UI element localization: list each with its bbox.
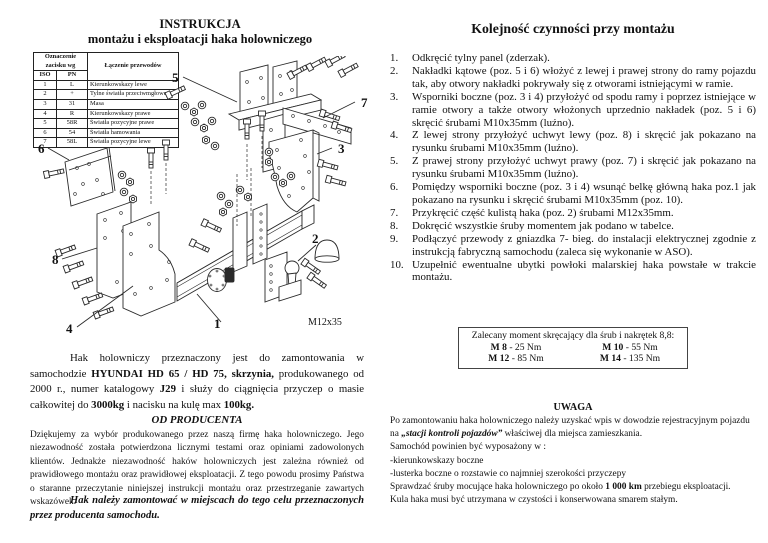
diagram-socket-flange <box>208 268 235 292</box>
step-number: 1. <box>390 52 398 65</box>
notice-paragraph: Kula haka musi być utrzymana w czystości… <box>390 494 758 507</box>
notice-section-title: UWAGA <box>390 402 756 413</box>
exploded-view-diagram: 5 7 6 3 2 8 4 1 M12x35 <box>25 56 380 348</box>
notice-text: przebiegu eksploatacji. <box>642 482 731 492</box>
step-text: Wsporniki boczne (poz. 3 i 4) przyłożyć … <box>412 91 756 129</box>
list-item: 4.Z lewej strony przyłożyć uchwyt lewy (… <box>390 129 756 155</box>
notice-section-body: Po zamontowaniu haka holowniczego należy… <box>390 415 758 507</box>
torque-table-box: Zalecany moment skręcający dla śrub i na… <box>458 327 688 369</box>
list-item: 8.Dokręcić wszystkie śruby momentem jak … <box>390 220 756 233</box>
diagram-part-4-support <box>123 212 175 316</box>
vehicle-model: HYUNDAI HD 65 / HD 75, skrzynia, <box>91 368 274 380</box>
inspection-station-phrase: „stacji kontroli pojazdów” <box>401 429 502 439</box>
bolt-size-label: M12x35 <box>308 317 342 328</box>
part-label-8: 8 <box>52 252 59 267</box>
torque-entry: M 10 - 55 Nm <box>573 342 687 354</box>
notice-paragraph: Po zamontowaniu haka holowniczego należy… <box>390 415 758 441</box>
torque-grid: M 8 - 25 Nm M 10 - 55 Nm M 12 - 85 Nm M … <box>459 342 687 365</box>
notice-text: właściwej dla miejsca zamieszkania. <box>502 429 642 439</box>
torque-entry: M 8 - 25 Nm <box>459 342 573 354</box>
step-number: 10. <box>390 259 404 272</box>
part-label-1: 1 <box>214 316 221 331</box>
step-number: 7. <box>390 207 398 220</box>
step-number: 6. <box>390 181 398 194</box>
catalog-number: J29 <box>160 383 176 395</box>
step-text: Z prawej strony przyłożyć uchwyt prawy (… <box>412 155 756 180</box>
left-title-line1: INSTRUKCJA <box>60 17 340 32</box>
step-text: Odkręcić tylny panel (zderzak). <box>412 52 550 64</box>
torque-box-title: Zalecany moment skręcający dla śrub i na… <box>459 330 687 342</box>
intro-text: i nacisku na kulę max <box>124 399 224 411</box>
torque-entry: M 12 - 85 Nm <box>459 353 573 365</box>
bolt-size: M 10 <box>602 342 623 353</box>
left-document-title: INSTRUKCJA montażu i eksploatacji haka h… <box>60 17 340 47</box>
list-item: 2.Nakładki kątowe (poz. 5 i 6) włożyć z … <box>390 65 756 91</box>
mileage-value: 1 000 km <box>605 482 641 492</box>
step-number: 4. <box>390 129 398 142</box>
list-item: 10.Uzupełnić ewentualne ubytki powłoki m… <box>390 259 756 285</box>
diagram-part-3-support <box>269 130 319 212</box>
notice-paragraph: Sprawdzać śruby mocujące haka holownicze… <box>390 481 758 494</box>
max-ball-load: 100kg. <box>224 399 254 411</box>
diagram-ball-cover-cap <box>315 240 339 262</box>
part-label-5: 5 <box>172 70 179 85</box>
notice-text: Sprawdzać śruby mocujące haka holownicze… <box>390 482 605 492</box>
bolt-size: M 14 <box>600 353 621 364</box>
list-item: 7.Przykręcić część kulistą haka (poz. 2)… <box>390 207 756 220</box>
list-item: 1.Odkręcić tylny panel (zderzak). <box>390 52 756 65</box>
instruction-document-page: INSTRUKCJA montażu i eksploatacji haka h… <box>0 0 768 543</box>
torque-value: - 25 Nm <box>509 342 541 353</box>
part-label-3: 3 <box>338 141 345 156</box>
diagram-center-bracket <box>233 204 267 272</box>
assembly-steps-list: 1.Odkręcić tylny panel (zderzak). 2.Nakł… <box>390 52 756 284</box>
step-number: 9. <box>390 233 398 246</box>
notice-paragraph: Samochód powinien być wyposażony w : <box>390 441 758 454</box>
max-trailer-mass: 3000kg <box>91 399 124 411</box>
producer-section-note: Hak należy zamontować w miejscach do teg… <box>30 494 364 523</box>
step-text: Podłączyć przewody z gniazdka 7- bieg. d… <box>412 233 756 258</box>
torque-value: - 55 Nm <box>626 342 658 353</box>
list-item: 3.Wsporniki boczne (poz. 3 i 4) przyłoży… <box>390 91 756 130</box>
list-item: 9.Podłączyć przewody z gniazdka 7- bieg.… <box>390 233 756 259</box>
step-text: Pomiędzy wsporniki boczne (poz. 3 i 4) w… <box>412 181 756 206</box>
step-number: 8. <box>390 220 398 233</box>
torque-entry: M 14 - 135 Nm <box>573 353 687 365</box>
list-item: 5.Z prawej strony przyłożyć uchwyt prawy… <box>390 155 756 181</box>
step-text: Dokręcić wszystkie śruby momentem jak po… <box>412 220 674 232</box>
part-label-2: 2 <box>312 231 319 246</box>
torque-value: - 135 Nm <box>623 353 660 364</box>
step-text: Przykręcić część kulistą haka (poz. 2) ś… <box>412 207 674 219</box>
right-document-title: Kolejność czynności przy montażu <box>390 21 756 37</box>
step-number: 3. <box>390 91 398 104</box>
part-label-4: 4 <box>66 321 73 336</box>
step-text: Z lewej strony przyłożyć uchwyt lewy (po… <box>412 129 756 154</box>
left-title-line2: montażu i eksploatacji haka holowniczego <box>60 32 340 47</box>
list-item: 6.Pomiędzy wsporniki boczne (poz. 3 i 4)… <box>390 181 756 207</box>
notice-paragraph: -lusterka boczne o rozstawie co najmniej… <box>390 468 758 481</box>
part-label-6: 6 <box>38 141 45 156</box>
step-text: Uzupełnić ewentualne ubytki powłoki mala… <box>412 259 756 284</box>
diagram-part-2-ball <box>265 252 301 302</box>
intro-paragraph: Hak holowniczy przeznaczony jest do zamo… <box>30 351 364 414</box>
part-label-7: 7 <box>361 95 368 110</box>
torque-value: - 85 Nm <box>512 353 544 364</box>
bolt-size: M 8 <box>491 342 507 353</box>
step-text: Nakładki kątowe (poz. 5 i 6) włożyć z le… <box>412 65 756 90</box>
step-number: 5. <box>390 155 398 168</box>
step-number: 2. <box>390 65 398 78</box>
bolt-size: M 12 <box>488 353 509 364</box>
diagram-part-6-angle-plate <box>65 147 115 206</box>
producer-section-title: OD PRODUCENTA <box>30 414 364 426</box>
notice-paragraph: -kierunkowskazy boczne <box>390 455 758 468</box>
